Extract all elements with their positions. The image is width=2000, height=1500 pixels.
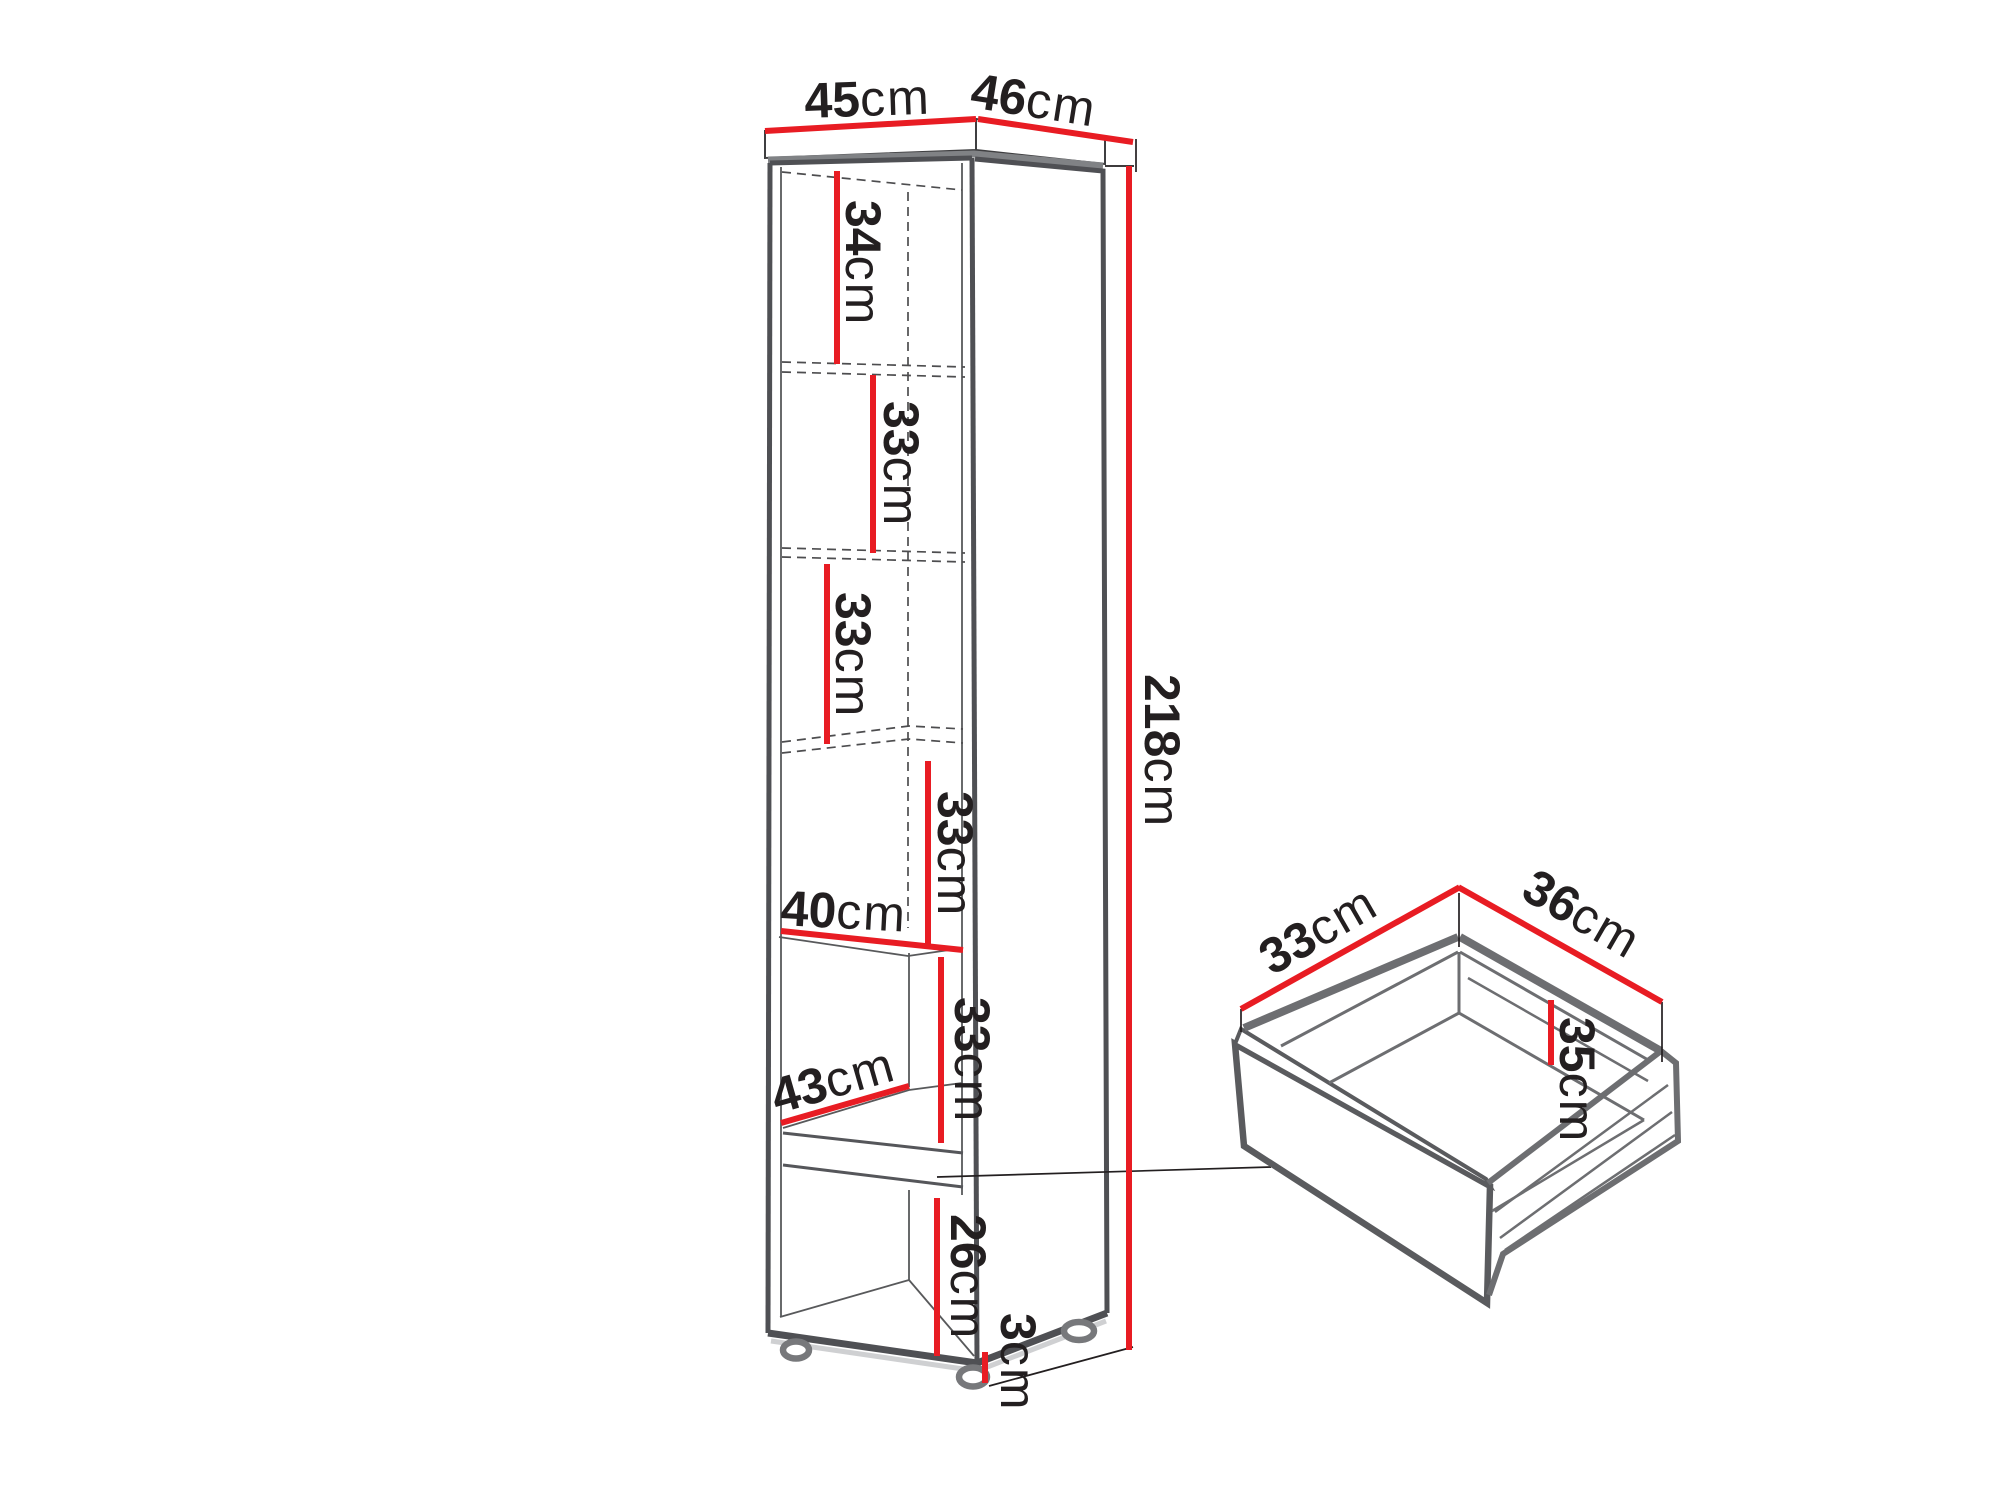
svg-text:34cm: 34cm [835, 200, 891, 326]
svg-text:26cm: 26cm [940, 1214, 996, 1340]
svg-text:45cm: 45cm [803, 69, 931, 129]
svg-text:40cm: 40cm [779, 880, 908, 943]
svg-text:33cm: 33cm [873, 401, 929, 527]
svg-text:33cm: 33cm [927, 791, 983, 917]
svg-text:3cm: 3cm [990, 1313, 1046, 1411]
svg-text:43cm: 43cm [765, 1036, 902, 1125]
svg-text:218cm: 218cm [1134, 674, 1190, 828]
svg-text:33cm: 33cm [944, 997, 1000, 1123]
svg-text:33cm: 33cm [825, 592, 881, 718]
svg-text:36cm: 36cm [1514, 858, 1651, 970]
svg-text:35cm: 35cm [1549, 1017, 1605, 1143]
